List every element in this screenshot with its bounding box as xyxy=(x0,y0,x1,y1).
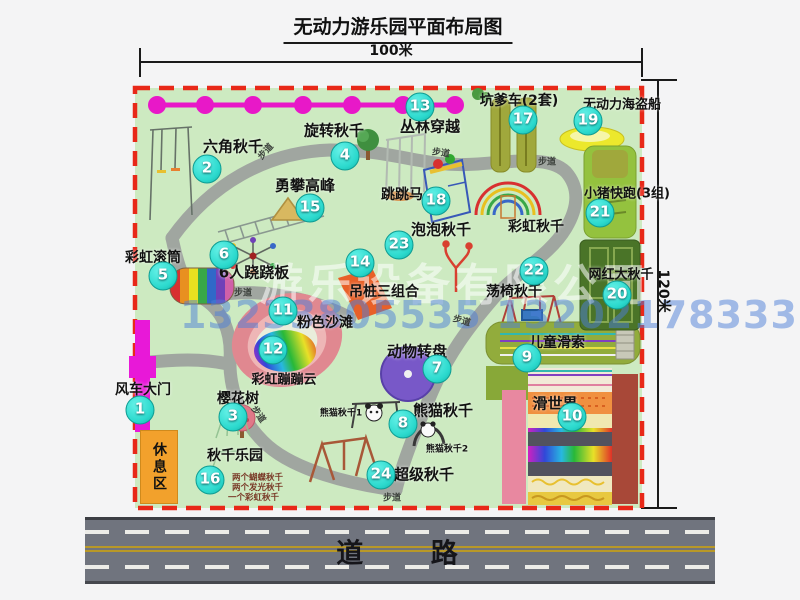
slide-world-icon xyxy=(486,366,638,505)
road-edge xyxy=(85,581,715,584)
label-bubble-swing: 泡泡秋千 xyxy=(411,219,471,240)
label-rainbow-cloud: 彩虹蹦蹦云 xyxy=(251,369,316,388)
label-hexagon-swing: 六角秋千 xyxy=(203,136,263,157)
label-super-swing: 超级秋千 xyxy=(394,464,454,485)
label-climb-peak: 勇攀高峰 xyxy=(275,175,335,196)
label-jumping-horse: 跳跳马 xyxy=(381,184,423,204)
badge-4: 4 xyxy=(331,142,360,171)
badge-15: 15 xyxy=(296,194,325,223)
badge-22: 22 xyxy=(520,257,549,286)
badge-23: 23 xyxy=(385,231,414,260)
road: 道 路 xyxy=(85,517,715,584)
rainbow-swing-icon xyxy=(476,183,540,218)
badge-17: 17 xyxy=(509,106,538,135)
label-swing-park: 秋千乐园 xyxy=(207,445,263,465)
rest-area: 休息区 xyxy=(140,430,178,504)
badge-19: 19 xyxy=(574,107,603,136)
badge-24: 24 xyxy=(367,461,396,490)
label-panda-swing: 熊猫秋千 xyxy=(413,400,473,421)
badge-16: 16 xyxy=(196,466,225,495)
label-panda-swing-2: 熊猫秋千2 xyxy=(426,442,468,455)
badge-8: 8 xyxy=(389,410,418,439)
badge-3: 3 xyxy=(219,403,248,432)
badge-20: 20 xyxy=(603,281,632,310)
label-panda-swing-1: 熊猫秋千1 xyxy=(320,406,362,419)
badge-9: 9 xyxy=(513,344,542,373)
label-pink-beach: 粉色沙滩 xyxy=(297,312,353,332)
rest-area-label: 休息区 xyxy=(149,442,169,493)
park-plan-page: 无动力游乐园平面布局图 xyxy=(0,0,800,600)
badge-7: 7 xyxy=(423,355,452,384)
swing-park-note-3: 一个彩虹秋千 xyxy=(228,491,279,503)
badge-21: 21 xyxy=(586,199,615,228)
road-edge xyxy=(85,517,715,520)
scale-right-label: 120米 xyxy=(654,269,674,312)
label-big-swing: 网红大秋千 xyxy=(588,264,653,283)
badge-12: 12 xyxy=(259,336,288,365)
badge-2: 2 xyxy=(193,155,222,184)
trail-label-7: 步道 xyxy=(383,491,401,504)
badge-5: 5 xyxy=(149,262,178,291)
label-jungle-crossing: 丛林穿越 xyxy=(400,116,460,137)
label-hanging-piles: 吊桩三组合 xyxy=(349,281,419,301)
badge-1: 1 xyxy=(126,396,155,425)
trail-label-2: 步道 xyxy=(431,144,451,159)
label-rainbow-swing: 彩虹秋千 xyxy=(508,216,564,236)
badge-6: 6 xyxy=(210,241,239,270)
badge-11: 11 xyxy=(269,297,298,326)
road-label: 道 路 xyxy=(336,531,464,570)
trail-label-3: 步道 xyxy=(538,155,556,168)
hexagon-swing-icon xyxy=(150,127,192,220)
badge-13: 13 xyxy=(406,93,435,122)
trail-label-4: 步道 xyxy=(234,286,252,299)
label-rotating-swing: 旋转秋千 xyxy=(304,120,364,141)
scale-top-label: 100米 xyxy=(369,40,412,60)
badge-18: 18 xyxy=(422,187,451,216)
badge-10: 10 xyxy=(558,403,587,432)
badge-14: 14 xyxy=(346,249,375,278)
